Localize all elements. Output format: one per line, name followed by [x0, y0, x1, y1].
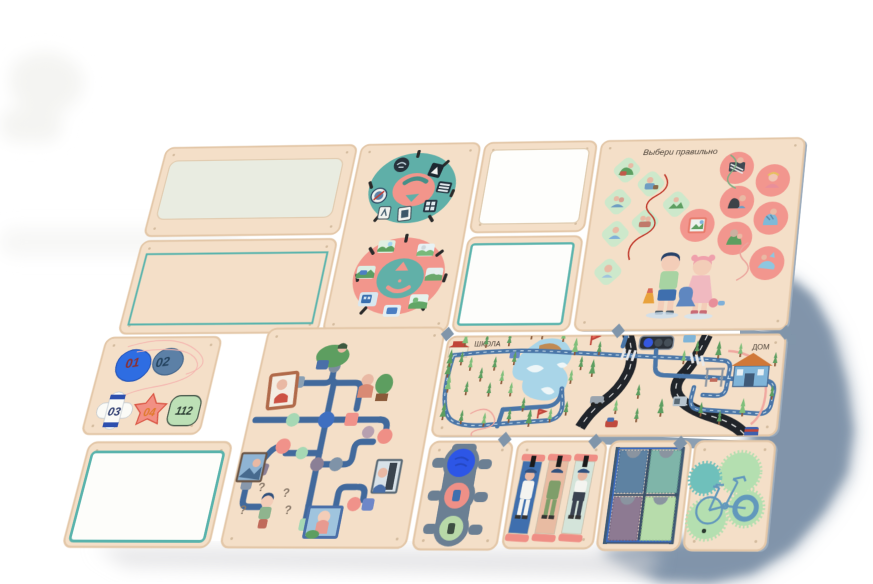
svg-text:ДОМ: ДОМ — [752, 344, 770, 352]
svg-text:01: 01 — [125, 356, 141, 371]
svg-text:Выбери правильно: Выбери правильно — [643, 147, 719, 157]
svg-text:02: 02 — [155, 355, 171, 370]
